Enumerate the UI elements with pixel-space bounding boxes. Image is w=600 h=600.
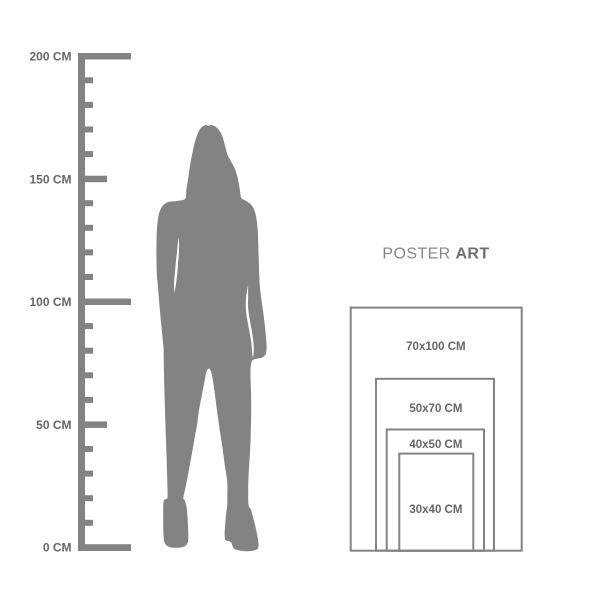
svg-text:30x40 CM: 30x40 CM xyxy=(409,504,462,516)
svg-text:0 CM: 0 CM xyxy=(43,541,72,555)
svg-text:POSTER ART: POSTER ART xyxy=(382,246,489,263)
svg-text:70x100 CM: 70x100 CM xyxy=(406,341,465,353)
svg-text:100 CM: 100 CM xyxy=(29,295,71,309)
svg-text:50x70 CM: 50x70 CM xyxy=(409,403,462,415)
svg-text:40x50 CM: 40x50 CM xyxy=(409,439,462,451)
svg-text:200 CM: 200 CM xyxy=(29,50,71,64)
svg-text:150 CM: 150 CM xyxy=(29,172,71,186)
svg-text:50 CM: 50 CM xyxy=(36,418,71,432)
